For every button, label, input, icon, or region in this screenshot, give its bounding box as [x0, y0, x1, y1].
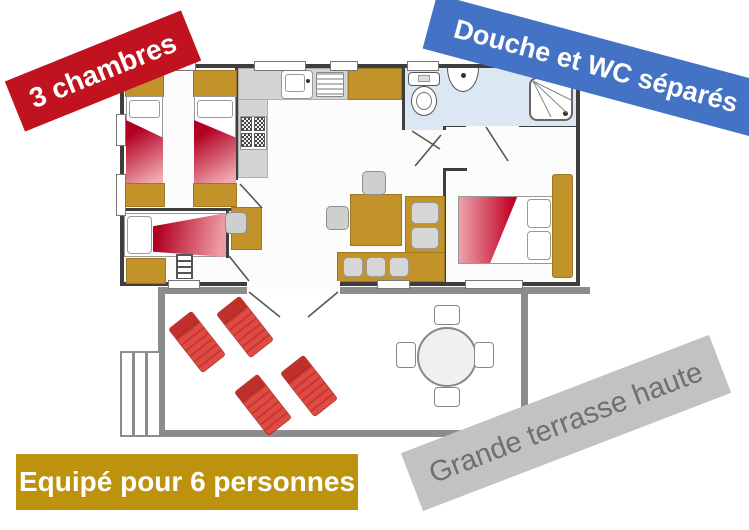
shower-drain	[563, 111, 568, 116]
hob-burner	[241, 117, 252, 131]
hob-burner	[254, 133, 265, 147]
chair	[474, 342, 494, 368]
bed-foot-storage	[123, 183, 165, 207]
bunk-ladder	[176, 254, 193, 279]
wall	[443, 168, 467, 171]
bench-cushion	[411, 227, 439, 249]
window	[377, 280, 410, 289]
floor-plan: 3 chambres Douche et WC séparés Equipé p…	[0, 0, 749, 530]
bench-cushion	[366, 257, 386, 277]
pillow	[527, 231, 551, 260]
bench-cushion	[411, 202, 439, 224]
chair	[434, 305, 460, 325]
steps	[146, 351, 161, 437]
hob-burner	[241, 133, 252, 147]
banner-capacity-label: Equipé pour 6 personnes	[19, 466, 355, 498]
kitchen-cabinet	[348, 68, 402, 100]
chair	[396, 342, 416, 368]
bed-headboard	[552, 174, 573, 278]
chair	[225, 212, 247, 234]
chair	[362, 171, 386, 195]
dish-drainer	[316, 72, 344, 97]
window	[465, 280, 523, 289]
window	[116, 114, 126, 146]
steps	[120, 351, 134, 437]
window	[116, 174, 126, 216]
bench-cushion	[389, 257, 409, 277]
window	[330, 61, 358, 71]
basin-faucet	[461, 73, 466, 78]
round-table	[417, 327, 477, 387]
dining-table	[350, 194, 402, 246]
wardrobe	[126, 258, 166, 284]
bed-foot-storage	[193, 183, 237, 207]
pillow	[129, 100, 160, 118]
sink-faucet	[306, 79, 310, 83]
banner-capacity: Equipé pour 6 personnes	[16, 454, 358, 510]
hob-burner	[254, 117, 265, 131]
bed-headboard	[193, 70, 237, 97]
wall	[120, 208, 236, 211]
bench-cushion	[343, 257, 363, 277]
pillow	[127, 216, 152, 254]
toilet-button	[418, 75, 430, 82]
toilet-bowl-inner	[416, 92, 432, 110]
chair	[434, 387, 460, 407]
pillow	[527, 199, 551, 228]
chair	[326, 206, 349, 230]
steps	[133, 351, 147, 437]
window	[254, 61, 306, 71]
pillow	[197, 100, 233, 118]
terrace-window	[168, 280, 200, 289]
terrace-door-opening	[247, 281, 340, 289]
sink-basin	[285, 74, 305, 92]
window	[407, 61, 439, 71]
